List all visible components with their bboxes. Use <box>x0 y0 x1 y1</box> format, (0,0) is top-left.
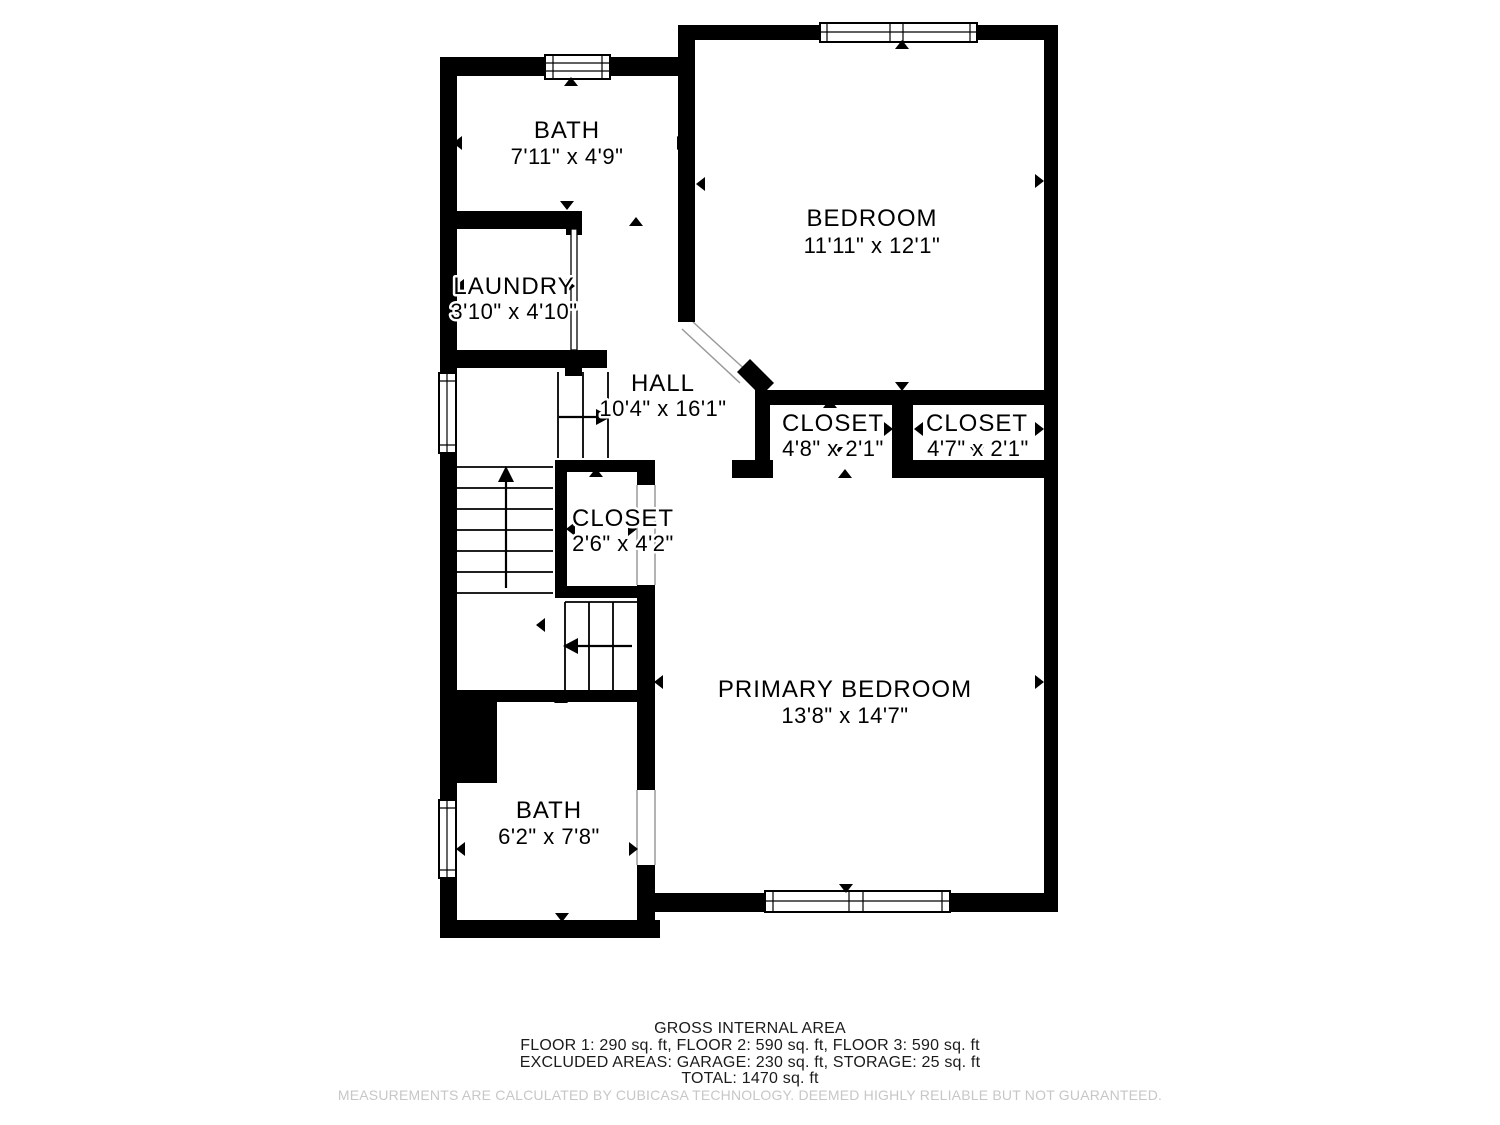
room-dims-closet-2: 4'7" x 2'1" <box>927 436 1029 461</box>
room-dims-laundry: 3'10" x 4'10" <box>450 299 577 324</box>
floorplan-drawing: BATH 7'11" x 4'9" BEDROOM 11'11" x 12'1"… <box>0 0 1500 1125</box>
room-label-closet-1: CLOSET <box>782 410 884 437</box>
room-label-bath-bottom: BATH <box>516 797 582 824</box>
room-label-primary-bedroom: PRIMARY BEDROOM <box>718 676 972 703</box>
window-bath-top <box>545 55 610 79</box>
gross-internal-area-title: GROSS INTERNAL AREA <box>0 1020 1500 1038</box>
floor-areas-line: FLOOR 1: 290 sq. ft, FLOOR 2: 590 sq. ft… <box>0 1037 1500 1055</box>
room-dims-bath-bottom: 6'2" x 7'8" <box>498 824 600 849</box>
room-label-bedroom: BEDROOM <box>806 205 937 232</box>
window-bedroom-top <box>820 23 977 42</box>
floorplan-page: BATH 7'11" x 4'9" BEDROOM 11'11" x 12'1"… <box>0 0 1500 1125</box>
room-dims-bath-top: 7'11" x 4'9" <box>511 144 624 169</box>
window-left-hall <box>439 373 456 453</box>
window-primary-bottom <box>765 891 950 912</box>
room-label-hall: HALL <box>631 370 695 397</box>
room-label-closet-2: CLOSET <box>926 410 1028 437</box>
stairs-up-arrow <box>498 466 514 588</box>
room-label-bath-top: BATH <box>534 117 600 144</box>
room-label-laundry: LAUNDRY <box>453 273 574 300</box>
room-label-closet-3: CLOSET <box>572 505 674 532</box>
measurement-disclaimer: MEASUREMENTS ARE CALCULATED BY CUBICASA … <box>0 1087 1500 1103</box>
stairs-left-arrow <box>563 638 632 654</box>
room-dims-closet-3: 2'6" x 4'2" <box>572 531 674 556</box>
room-dims-hall: 10'4" x 16'1" <box>599 396 726 421</box>
window-left-bath <box>439 800 456 878</box>
room-dims-bedroom: 11'11" x 12'1" <box>804 233 941 258</box>
total-area-line: TOTAL: 1470 sq. ft <box>0 1070 1500 1088</box>
room-dims-primary-bedroom: 13'8" x 14'7" <box>781 703 908 728</box>
room-dims-closet-1: 4'8" x 2'1" <box>782 436 884 461</box>
